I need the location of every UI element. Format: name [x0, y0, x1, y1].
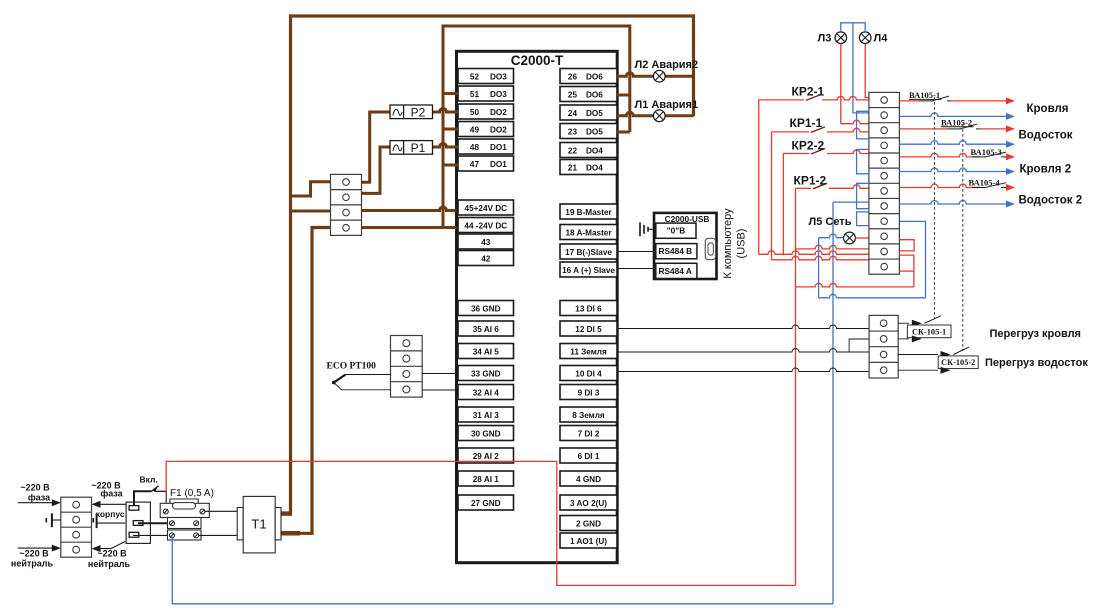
svg-text:19 B-Master: 19 B-Master [565, 208, 612, 217]
svg-text:29 AI 2: 29 AI 2 [473, 452, 500, 461]
svg-text:Л3: Л3 [818, 33, 832, 45]
svg-text:25: 25 [568, 91, 578, 100]
svg-text:ВА105-4: ВА105-4 [969, 178, 1001, 188]
svg-text:ВА105-2: ВА105-2 [941, 117, 972, 127]
svg-text:ВА105-3: ВА105-3 [971, 147, 1002, 157]
svg-text:DO5: DO5 [586, 128, 603, 137]
svg-text:30 GND: 30 GND [471, 430, 501, 439]
svg-text:31 AI 3: 31 AI 3 [473, 411, 500, 420]
svg-text:DO3: DO3 [490, 90, 507, 99]
svg-text:DO3: DO3 [490, 73, 507, 82]
svg-text:16 A (+) Slave: 16 A (+) Slave [562, 266, 615, 275]
svg-text:Вкл.: Вкл. [140, 475, 158, 485]
svg-text:DO4: DO4 [586, 147, 603, 156]
svg-text:DO6: DO6 [586, 91, 603, 100]
svg-text:44 -24V DC: 44 -24V DC [464, 222, 507, 231]
svg-text:18 A-Master: 18 A-Master [565, 229, 612, 238]
svg-text:фаза: фаза [28, 492, 51, 502]
svg-text:DO2: DO2 [490, 108, 507, 117]
svg-text:51: 51 [470, 90, 480, 99]
svg-text:КР2-1: КР2-1 [792, 85, 825, 99]
svg-text:RS484 A: RS484 A [659, 266, 692, 276]
svg-text:1 AO1 (U): 1 AO1 (U) [570, 537, 607, 546]
svg-text:23: 23 [568, 128, 578, 137]
svg-text:Перегруз кровля: Перегруз кровля [990, 328, 1081, 340]
svg-text:50: 50 [470, 108, 480, 117]
svg-text:6 DI 1: 6 DI 1 [578, 452, 600, 461]
svg-text:35 AI 6: 35 AI 6 [473, 325, 500, 334]
svg-text:47: 47 [470, 160, 480, 169]
svg-text:P2: P2 [411, 106, 426, 120]
svg-text:DO6: DO6 [586, 73, 603, 82]
svg-text:T1: T1 [251, 517, 266, 532]
svg-text:32 AI 4: 32 AI 4 [473, 389, 500, 398]
svg-text:26: 26 [568, 73, 578, 82]
svg-text:КР1-1: КР1-1 [790, 116, 823, 130]
svg-text:4 GND: 4 GND [576, 475, 601, 484]
svg-text:Л1 Авария1: Л1 Авария1 [635, 99, 699, 111]
svg-text:C2000-T: C2000-T [511, 53, 564, 68]
svg-text:21: 21 [568, 164, 578, 173]
svg-text:СК-105-1: СК-105-1 [912, 327, 946, 336]
svg-text:корпус: корпус [96, 509, 125, 519]
svg-text:Водосток 2: Водосток 2 [1019, 195, 1083, 207]
svg-text:~220 В: ~220 В [19, 549, 49, 559]
svg-text:КР2-2: КР2-2 [792, 139, 825, 153]
svg-text:3 AO 2(U): 3 AO 2(U) [570, 499, 607, 508]
svg-text:Л4: Л4 [874, 33, 889, 45]
svg-text:DO2: DO2 [490, 126, 507, 135]
svg-text:36 GND: 36 GND [471, 305, 501, 314]
svg-text:P1: P1 [411, 141, 426, 155]
svg-text:КР1-2: КР1-2 [794, 174, 827, 188]
svg-text:(USB): (USB) [736, 229, 748, 259]
svg-text:10 DI 4: 10 DI 4 [575, 370, 602, 379]
svg-text:ECO PT100: ECO PT100 [327, 362, 377, 372]
svg-text:нейтраль: нейтраль [88, 559, 131, 569]
svg-text:Водосток: Водосток [1019, 130, 1073, 142]
svg-text:СК-105-2: СК-105-2 [941, 358, 975, 367]
svg-text:F1 (0,5 A): F1 (0,5 A) [170, 488, 214, 499]
svg-text:11 Земля: 11 Земля [570, 348, 607, 357]
svg-text:Л5 Сеть: Л5 Сеть [809, 216, 852, 228]
svg-text:К компьютеру: К компьютеру [722, 208, 734, 279]
svg-text:фаза: фаза [100, 489, 123, 499]
svg-text:52: 52 [470, 73, 480, 82]
svg-text:43: 43 [481, 238, 491, 247]
svg-text:9 DI 3: 9 DI 3 [578, 389, 600, 398]
svg-text:Л2 Авария2: Л2 Авария2 [635, 59, 699, 71]
svg-text:8 Земля: 8 Земля [572, 411, 605, 420]
svg-text:27 GND: 27 GND [471, 499, 501, 508]
svg-text:Кровля: Кровля [1027, 103, 1069, 115]
svg-text:33 GND: 33 GND [471, 370, 501, 379]
svg-text:34 AI 5: 34 AI 5 [473, 348, 500, 357]
svg-text:7 DI 2: 7 DI 2 [578, 430, 600, 439]
svg-text:ВА105-1: ВА105-1 [909, 90, 940, 100]
svg-text:45+24V DC: 45+24V DC [465, 204, 508, 213]
svg-text:49: 49 [470, 126, 480, 135]
svg-text:Кровля 2: Кровля 2 [1020, 164, 1072, 176]
svg-text:42: 42 [481, 255, 491, 264]
svg-text:2 GND: 2 GND [576, 520, 601, 529]
svg-text:DO5: DO5 [586, 109, 603, 118]
svg-text:~220 В: ~220 В [20, 483, 50, 493]
svg-text:нейтраль: нейтраль [11, 559, 54, 569]
svg-text:Перегруз водосток: Перегруз водосток [985, 357, 1088, 369]
svg-text:DO4: DO4 [586, 164, 603, 173]
svg-text:RS484 B: RS484 B [659, 246, 693, 256]
svg-text:17 B(-)Slave: 17 B(-)Slave [565, 248, 612, 257]
svg-text:48: 48 [470, 143, 480, 152]
svg-text:~220 В: ~220 В [97, 549, 127, 559]
svg-text:12 DI 5: 12 DI 5 [575, 325, 602, 334]
svg-text:DO1: DO1 [490, 160, 507, 169]
svg-text:28 AI 1: 28 AI 1 [473, 475, 500, 484]
svg-text:22: 22 [568, 147, 578, 156]
svg-text:DO1: DO1 [490, 143, 507, 152]
svg-text:24: 24 [568, 109, 578, 118]
svg-text:C2000-USB: C2000-USB [665, 214, 710, 224]
svg-text:"0"В: "0"В [667, 226, 685, 236]
svg-text:13 DI 6: 13 DI 6 [575, 305, 602, 314]
